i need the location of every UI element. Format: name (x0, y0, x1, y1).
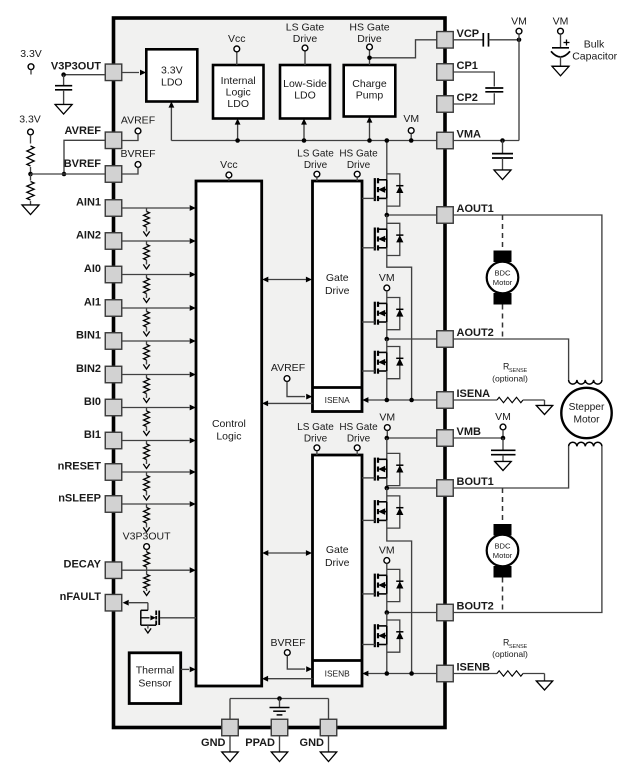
svg-text:VM: VM (495, 411, 511, 423)
svg-text:Drive: Drive (347, 160, 371, 171)
svg-text:VM: VM (511, 16, 527, 28)
svg-text:3.3V: 3.3V (161, 65, 183, 77)
svg-text:AIN1: AIN1 (76, 197, 101, 209)
svg-text:LS Gate: LS Gate (297, 422, 334, 433)
svg-text:Drive: Drive (304, 160, 328, 171)
svg-text:(optional): (optional) (492, 649, 528, 659)
svg-text:Capacitor: Capacitor (572, 51, 617, 63)
svg-text:Motor: Motor (573, 415, 600, 426)
svg-text:AVREF: AVREF (271, 362, 305, 374)
svg-text:BVREF: BVREF (270, 637, 305, 649)
svg-text:BDC: BDC (494, 269, 511, 278)
svg-text:BI0: BI0 (84, 396, 101, 408)
svg-text:LDO: LDO (294, 90, 316, 102)
svg-text:Control: Control (212, 418, 246, 430)
svg-text:Drive: Drive (325, 557, 350, 569)
svg-text:LDO: LDO (227, 98, 249, 110)
svg-text:BDC: BDC (494, 542, 511, 551)
svg-text:GND: GND (201, 737, 226, 749)
svg-text:VM: VM (379, 545, 395, 557)
svg-text:Pump: Pump (356, 90, 384, 102)
svg-text:Gate: Gate (326, 544, 349, 556)
svg-text:Logic: Logic (216, 431, 241, 443)
svg-text:VM: VM (379, 412, 395, 424)
svg-text:BOUT1: BOUT1 (457, 476, 494, 488)
svg-text:VM: VM (403, 113, 419, 125)
svg-text:AI1: AI1 (84, 297, 101, 309)
svg-text:AI0: AI0 (84, 263, 101, 275)
svg-text:Gate: Gate (326, 272, 349, 284)
svg-text:GND: GND (300, 737, 325, 749)
svg-text:V3P3OUT: V3P3OUT (51, 61, 101, 73)
svg-text:Drive: Drive (357, 33, 382, 45)
svg-text:HS Gate: HS Gate (339, 149, 378, 160)
svg-text:Drive: Drive (293, 33, 318, 45)
svg-text:BVREF: BVREF (64, 158, 102, 170)
svg-text:Vcc: Vcc (220, 159, 238, 171)
svg-text:AOUT2: AOUT2 (457, 327, 494, 339)
svg-text:PPAD: PPAD (245, 737, 275, 749)
svg-text:LDO: LDO (161, 77, 183, 89)
svg-text:ISENA: ISENA (325, 395, 351, 405)
svg-text:BI1: BI1 (84, 429, 101, 441)
svg-text:CP2: CP2 (457, 92, 478, 104)
svg-text:AIN2: AIN2 (76, 230, 101, 242)
svg-text:Drive: Drive (347, 434, 371, 445)
svg-text:V3P3OUT: V3P3OUT (123, 531, 171, 543)
svg-text:AOUT1: AOUT1 (457, 203, 494, 215)
svg-text:3.3V: 3.3V (20, 48, 42, 60)
svg-text:BIN2: BIN2 (76, 363, 101, 375)
svg-text:Low-Side: Low-Side (283, 78, 327, 90)
svg-text:LS Gate: LS Gate (286, 22, 325, 34)
svg-text:VMB: VMB (457, 426, 482, 438)
svg-text:BOUT2: BOUT2 (457, 601, 494, 613)
svg-text:LS Gate: LS Gate (297, 149, 334, 160)
svg-text:Sensor: Sensor (138, 678, 172, 690)
svg-text:ISENA: ISENA (457, 388, 491, 400)
svg-text:VM: VM (379, 272, 395, 284)
svg-text:VMA: VMA (457, 129, 482, 141)
svg-text:HS Gate: HS Gate (349, 22, 389, 34)
svg-text:DECAY: DECAY (64, 559, 102, 571)
svg-text:VCP: VCP (457, 28, 480, 40)
svg-text:Charge: Charge (352, 78, 387, 90)
svg-text:3.3V: 3.3V (19, 114, 41, 126)
svg-text:Drive: Drive (325, 285, 350, 297)
svg-text:Logic: Logic (226, 87, 251, 99)
svg-text:Thermal: Thermal (136, 665, 175, 677)
svg-text:Stepper: Stepper (569, 402, 605, 413)
svg-text:Motor: Motor (493, 551, 513, 560)
svg-text:Motor: Motor (493, 278, 513, 287)
svg-text:Vcc: Vcc (228, 33, 246, 45)
svg-text:ISENB: ISENB (457, 662, 491, 674)
svg-text:(optional): (optional) (492, 374, 528, 384)
svg-text:Drive: Drive (304, 434, 328, 445)
svg-text:AVREF: AVREF (121, 115, 155, 127)
svg-text:BVREF: BVREF (120, 148, 155, 160)
svg-text:nSLEEP: nSLEEP (58, 493, 101, 505)
svg-text:AVREF: AVREF (65, 125, 102, 137)
svg-text:CP1: CP1 (457, 60, 478, 72)
svg-text:ISENB: ISENB (325, 669, 351, 679)
svg-text:HS Gate: HS Gate (339, 422, 378, 433)
svg-text:nRESET: nRESET (58, 461, 102, 473)
svg-text:Internal: Internal (221, 75, 256, 87)
svg-text:Bulk: Bulk (584, 39, 605, 51)
svg-text:nFAULT: nFAULT (60, 591, 102, 603)
svg-text:BIN1: BIN1 (76, 330, 101, 342)
svg-text:VM: VM (553, 16, 569, 28)
